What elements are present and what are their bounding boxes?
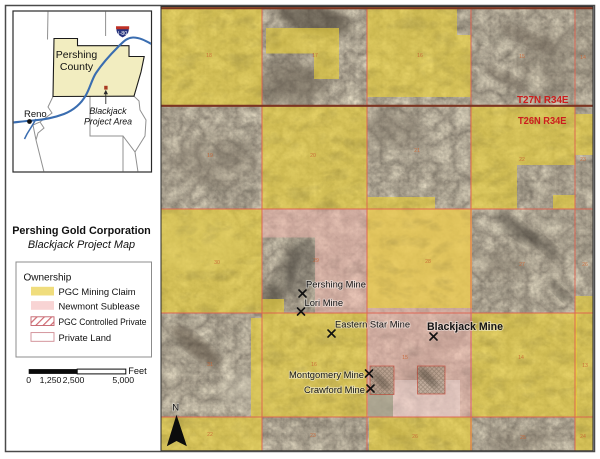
- svg-text:Crawford Mine: Crawford Mine: [304, 384, 365, 395]
- svg-text:25: 25: [520, 435, 526, 441]
- svg-text:14: 14: [580, 55, 586, 61]
- svg-text:Montgomery Mine: Montgomery Mine: [289, 369, 364, 380]
- svg-text:18: 18: [206, 53, 212, 59]
- svg-text:15: 15: [519, 54, 525, 60]
- svg-text:Pershing Mine: Pershing Mine: [306, 279, 366, 290]
- svg-text:Ownership: Ownership: [24, 273, 72, 284]
- svg-text:Blackjack Mine: Blackjack Mine: [427, 321, 503, 333]
- svg-text:26: 26: [582, 262, 588, 268]
- svg-text:31: 31: [207, 362, 213, 368]
- svg-text:14: 14: [518, 355, 524, 361]
- svg-text:PGC Mining Claim: PGC Mining Claim: [59, 286, 136, 297]
- svg-text:Pershing Gold Corporation: Pershing Gold Corporation: [12, 225, 151, 237]
- svg-text:I-80: I-80: [118, 31, 127, 37]
- svg-text:Newmont Sublease: Newmont Sublease: [59, 300, 140, 311]
- svg-text:T27N R34E: T27N R34E: [517, 95, 569, 106]
- svg-text:21: 21: [414, 148, 420, 154]
- svg-text:27: 27: [519, 262, 525, 268]
- svg-text:0: 0: [26, 375, 31, 385]
- svg-text:T26N R34E: T26N R34E: [518, 116, 567, 127]
- svg-text:22: 22: [207, 432, 213, 438]
- svg-text:28: 28: [425, 259, 431, 265]
- svg-text:23: 23: [580, 157, 586, 163]
- svg-text:13: 13: [582, 363, 588, 369]
- svg-text:Pershing: Pershing: [56, 49, 98, 61]
- svg-text:PGC Controlled Private: PGC Controlled Private: [59, 316, 147, 327]
- svg-text:2,500: 2,500: [63, 375, 85, 385]
- svg-text:17: 17: [312, 53, 318, 59]
- svg-text:Blackjack Project Map: Blackjack Project Map: [28, 239, 135, 251]
- svg-text:Lori Mine: Lori Mine: [305, 297, 344, 308]
- svg-text:1,250: 1,250: [40, 375, 62, 385]
- svg-text:16: 16: [311, 362, 317, 368]
- svg-text:29: 29: [313, 258, 319, 264]
- svg-text:Private Land: Private Land: [59, 332, 112, 343]
- svg-text:Project Area: Project Area: [84, 117, 132, 127]
- svg-text:Blackjack: Blackjack: [89, 106, 127, 116]
- svg-text:Eastern Star Mine: Eastern Star Mine: [335, 319, 410, 330]
- svg-text:26: 26: [412, 434, 418, 440]
- svg-text:16: 16: [417, 53, 423, 59]
- svg-text:County: County: [60, 61, 94, 73]
- svg-text:23: 23: [310, 433, 316, 439]
- svg-text:N: N: [172, 403, 179, 414]
- svg-text:22: 22: [519, 157, 525, 163]
- svg-text:19: 19: [207, 153, 213, 159]
- svg-text:Reno: Reno: [24, 109, 47, 120]
- svg-text:20: 20: [310, 153, 316, 159]
- svg-text:24: 24: [580, 434, 586, 440]
- svg-text:30: 30: [214, 260, 220, 266]
- svg-text:5,000: 5,000: [112, 375, 134, 385]
- svg-text:15: 15: [402, 355, 408, 361]
